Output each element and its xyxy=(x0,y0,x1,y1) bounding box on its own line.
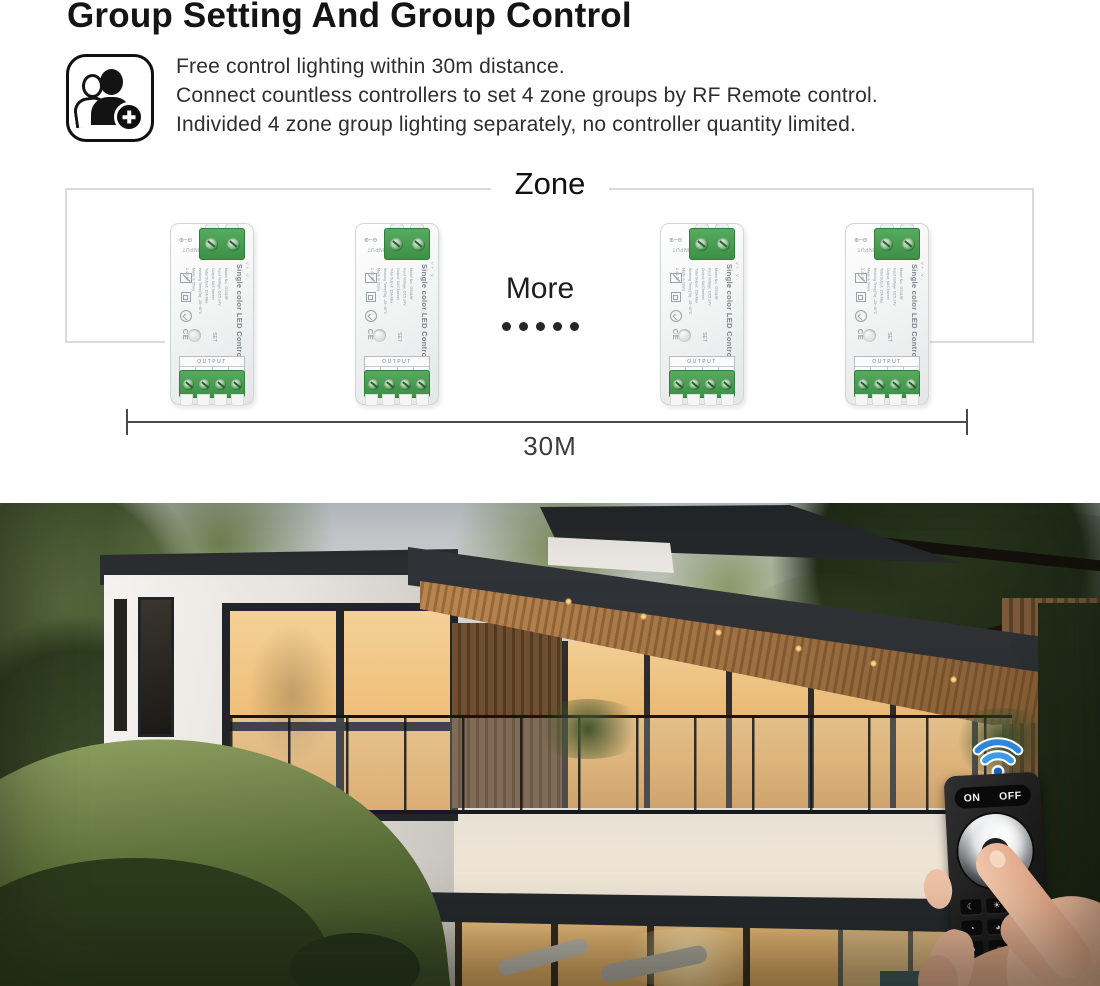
night-mode-button: ☾ xyxy=(960,899,982,915)
set-button xyxy=(678,329,691,342)
certified-check-icon xyxy=(180,310,192,322)
feature-line-1: Free control lighting within 30m distanc… xyxy=(176,56,878,78)
set-button xyxy=(188,329,201,342)
ellipsis-dots xyxy=(502,322,579,331)
house-photo: ON OFF ☾ ☀ ◔ ◕ ● ☼ xyxy=(0,503,1100,986)
on-button: ON xyxy=(963,791,980,804)
ceiling-spotlight xyxy=(715,629,722,636)
feature-line-3: Individed 4 zone group lighting separate… xyxy=(176,114,878,136)
input-label: INPUT xyxy=(182,246,200,252)
balcony-plant xyxy=(528,699,648,759)
led-controller-4: ⊖–⊕ INPUT V+ V- Single color LED Control… xyxy=(842,215,930,411)
input-terminal-block xyxy=(874,228,920,260)
zone-box-bottom-left-segment xyxy=(65,341,165,343)
input-terminal-marks: V+ V- xyxy=(245,262,250,282)
controller-body: ⊖–⊕ INPUT V+ V- Single color LED Control… xyxy=(170,223,254,405)
small-window xyxy=(138,597,174,737)
led-controller-1: ⊖–⊕ INPUT V+ V- Single color LED Control… xyxy=(167,215,255,411)
terminal-screw xyxy=(205,238,218,251)
output-label: OUTPUT xyxy=(180,357,244,367)
group-add-icon xyxy=(66,54,154,142)
set-label: SET xyxy=(211,332,217,342)
zone-box-bottom-right-segment xyxy=(930,341,1032,343)
page-title: Group Setting And Group Control xyxy=(67,0,632,38)
set-button xyxy=(373,329,386,342)
polarity-mark: ⊖–⊕ xyxy=(179,236,192,243)
ceiling-spotlight xyxy=(950,676,957,683)
led-controller-3: ⊖–⊕ INPUT V+ V- Single color LED Control… xyxy=(657,215,745,411)
terminal-screw xyxy=(227,238,240,251)
distance-line xyxy=(127,421,967,423)
ceiling-spotlight xyxy=(870,660,877,667)
input-terminal-block xyxy=(689,228,735,260)
feature-description: Free control lighting within 30m distanc… xyxy=(176,56,878,143)
set-button xyxy=(863,329,876,342)
more-label: More xyxy=(470,272,610,306)
led-controller-2: ⊖–⊕ INPUT V+ V- Single color LED Control… xyxy=(352,215,440,411)
zone-label: Zone xyxy=(0,166,1100,202)
terminal-tabs xyxy=(178,394,246,406)
input-terminal-block xyxy=(384,228,430,260)
double-insulation-icon xyxy=(181,292,191,302)
ceiling-spotlight xyxy=(565,598,572,605)
weee-bin-icon xyxy=(180,273,192,283)
ceiling-spotlight xyxy=(640,613,647,620)
input-terminal-block xyxy=(199,228,245,260)
plus-badge-icon xyxy=(114,102,144,132)
person-filled-head xyxy=(100,69,123,95)
distance-label: 30M xyxy=(0,431,1100,462)
product-infographic: Group Setting And Group Control Free con… xyxy=(0,0,1100,986)
feature-line-2: Connect countless controllers to set 4 z… xyxy=(176,85,878,107)
slit-window xyxy=(114,599,127,731)
on-off-panel: ON OFF xyxy=(954,784,1031,809)
ceiling-spotlight xyxy=(795,645,802,652)
off-button: OFF xyxy=(999,789,1022,802)
